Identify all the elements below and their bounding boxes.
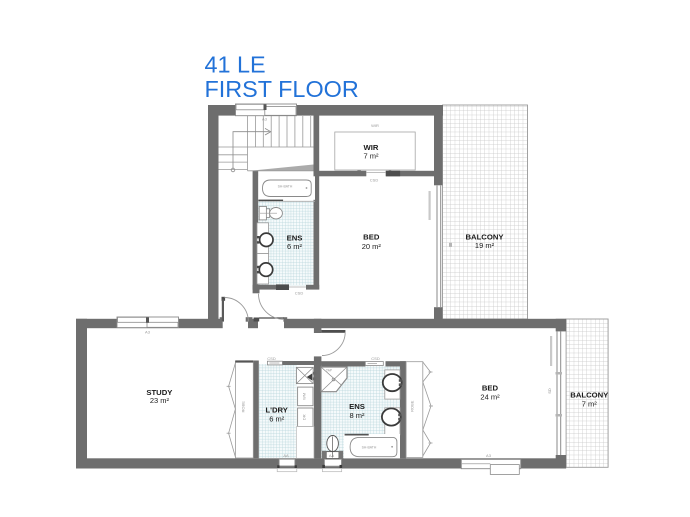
svg-text:FIRST FLOOR: FIRST FLOOR <box>205 76 359 102</box>
svg-text:SH-BATH: SH-BATH <box>362 446 377 450</box>
svg-text:CSD: CSD <box>370 178 379 183</box>
svg-text:A3: A3 <box>262 117 268 122</box>
svg-text:BED: BED <box>482 383 499 392</box>
svg-text:ENS: ENS <box>349 402 365 411</box>
svg-text:BALCONY: BALCONY <box>465 232 503 241</box>
svg-text:7 m²: 7 m² <box>582 399 598 408</box>
svg-text:ENS: ENS <box>287 233 303 242</box>
svg-text:23 m²: 23 m² <box>150 396 170 405</box>
svg-text:WM: WM <box>301 393 306 400</box>
svg-text:CSD: CSD <box>295 291 304 296</box>
svg-text:SH-BATH: SH-BATH <box>278 185 293 189</box>
svg-text:6 m²: 6 m² <box>287 242 303 251</box>
svg-text:A3: A3 <box>145 330 151 335</box>
svg-text:41 LE: 41 LE <box>205 51 266 77</box>
svg-text:ROBE: ROBE <box>241 401 246 413</box>
svg-text:A3: A3 <box>486 453 492 458</box>
svg-text:BALCONY: BALCONY <box>570 390 608 399</box>
svg-text:AA: AA <box>329 453 335 458</box>
svg-text:TAP: TAP <box>326 369 332 373</box>
svg-text:CSD: CSD <box>371 356 380 361</box>
svg-text:24 m²: 24 m² <box>480 393 500 402</box>
svg-text:DR: DR <box>301 414 306 420</box>
svg-text:7 m²: 7 m² <box>364 151 380 160</box>
svg-text:WIR: WIR <box>371 123 379 128</box>
svg-text:8 m²: 8 m² <box>350 411 366 420</box>
svg-text:AA: AA <box>283 453 289 458</box>
svg-text:SD: SD <box>547 388 552 394</box>
svg-text:CSD: CSD <box>267 356 276 361</box>
svg-text:6 m²: 6 m² <box>269 415 285 424</box>
svg-text:BED: BED <box>363 232 380 241</box>
svg-text:20 m²: 20 m² <box>362 242 382 251</box>
svg-text:ROBE: ROBE <box>409 400 414 412</box>
svg-text:L'DRY: L'DRY <box>265 406 287 415</box>
svg-text:19 m²: 19 m² <box>475 241 495 250</box>
